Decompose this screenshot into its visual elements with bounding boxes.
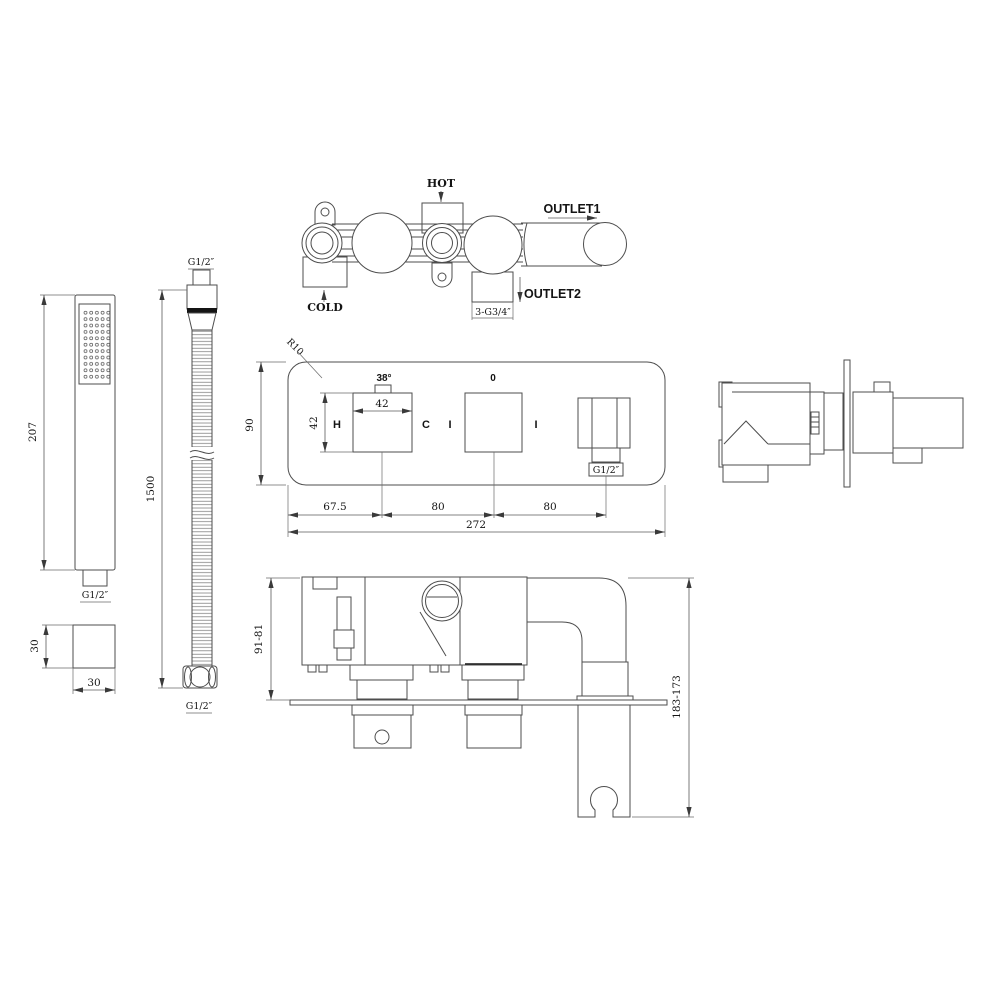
body-inner-stem	[337, 597, 351, 630]
cold-mark: C	[422, 419, 430, 431]
body-left-section	[302, 577, 365, 665]
outlet-elbow	[527, 578, 626, 662]
cold-label: COLD	[307, 301, 343, 314]
hot-port-ring	[423, 224, 462, 263]
plate-outlet-fitting	[578, 398, 630, 448]
outlet1-label: OUTLET1	[544, 202, 601, 216]
hot-label: HOT	[427, 177, 456, 190]
mounting-ear-left-hole	[321, 208, 329, 216]
stem2-neck	[468, 680, 518, 699]
side-body-foot	[723, 465, 768, 482]
plate-height-dim: 90	[244, 418, 256, 431]
plate-outlet-thread-label: G1/2″	[593, 465, 620, 476]
handset-holder-cutout	[590, 786, 617, 817]
body-inner-stem-low	[337, 648, 351, 660]
body-foot	[319, 665, 327, 672]
body-foot	[441, 665, 449, 672]
cross-section-height-dim: 30	[29, 639, 41, 652]
side-wall-plate	[844, 360, 850, 487]
stem2-flange	[462, 665, 524, 680]
side-valve-body	[722, 383, 810, 465]
elbow-stem	[582, 662, 628, 696]
hose-top-neck	[193, 270, 210, 285]
spacing-right-dim: 80	[543, 501, 556, 513]
tick-right-mark: I	[534, 419, 537, 431]
overall-depth-dim: 183-173	[671, 675, 683, 719]
technical-drawing-canvas: G1/2″ 207 30 30 G1/2″ G1/2″	[0, 0, 1000, 1000]
body-foot	[430, 665, 438, 672]
hose-top-fitting	[187, 285, 217, 309]
diverter-zero-label: 0	[490, 373, 496, 384]
spray-nozzle-grid	[83, 310, 111, 380]
knob1-body	[354, 715, 411, 748]
outlet2-block	[472, 272, 513, 302]
plate-outlet-nipple	[592, 448, 620, 462]
shower-valve-technical-drawing: G1/2″ 207 30 30 G1/2″ G1/2″	[0, 0, 1000, 1000]
stem1-flange	[350, 665, 413, 680]
body-inner-block	[334, 630, 354, 648]
spacing-mid-dim: 80	[431, 501, 444, 513]
hose-length-dim: 1500	[145, 476, 157, 503]
body-right-section	[460, 577, 527, 665]
cross-section-width-dim: 30	[87, 677, 100, 689]
hand-shower-thread-label: G1/2″	[82, 590, 109, 601]
diverter-handle	[465, 393, 522, 452]
handle-cross-section	[73, 625, 115, 668]
side-handle-tab	[874, 382, 890, 392]
valve-side-view	[719, 360, 963, 487]
cold-port-ring	[302, 223, 342, 263]
trim-plate-front-view: R10 90 38° 42 42 H C I I 0 G1/2″	[244, 337, 665, 537]
side-handle-base	[853, 392, 893, 453]
handle-width-dim: 42	[375, 398, 388, 410]
tick-left-mark: I	[448, 419, 451, 431]
hose-ribbed-body	[192, 330, 212, 667]
hot-mark: H	[333, 419, 341, 431]
side-handle-block	[893, 448, 922, 463]
pipe-end-circle	[584, 223, 627, 266]
rough-in-depth-dim: 91-81	[253, 624, 265, 654]
hose-fitting-band	[187, 308, 217, 313]
hose-taper	[188, 313, 216, 330]
body-left-tab	[313, 577, 337, 589]
outlet-thread-label: 3-G3/4″	[475, 307, 511, 318]
temperature-handle-tab	[375, 385, 391, 393]
hand-shower-view: G1/2″ 207 30 30	[27, 295, 115, 694]
knob1-base	[352, 705, 413, 715]
hose-view: G1/2″ G1/2″ 1500	[145, 257, 217, 713]
valve-body-top-view: HOT COLD OUTLET1 OUTLET2 3-G3/4″	[302, 177, 627, 320]
hand-shower-fitting	[83, 570, 107, 586]
spacing-left-dim: 67.5	[323, 501, 346, 513]
hose-nut	[183, 666, 217, 688]
hand-shower-length-dim: 207	[27, 422, 39, 442]
body-foot	[308, 665, 316, 672]
wall-plate	[290, 700, 667, 705]
diverter-cartridge-circle	[464, 216, 522, 274]
outlet2-label: OUTLET2	[524, 287, 581, 301]
side-handle-bar	[893, 398, 963, 448]
temperature-label: 38°	[376, 373, 391, 384]
valve-installed-view: 91-81 183-173	[253, 577, 694, 818]
plate-total-width-dim: 272	[466, 519, 486, 531]
corner-radius-label: R10	[284, 337, 305, 358]
hose-top-thread-label: G1/2″	[188, 257, 215, 268]
mounting-ear-right-hole	[438, 273, 446, 281]
side-spacer	[824, 393, 843, 450]
knob2-body	[467, 715, 521, 748]
side-connector-ribs	[811, 412, 819, 434]
handle-height-dim: 42	[308, 416, 320, 429]
stem1-neck	[357, 680, 407, 699]
knob2-base	[465, 705, 522, 715]
body-port-circle	[422, 581, 462, 621]
thermostat-cartridge-circle	[352, 213, 412, 273]
hose-bottom-thread-label: G1/2″	[186, 701, 213, 712]
